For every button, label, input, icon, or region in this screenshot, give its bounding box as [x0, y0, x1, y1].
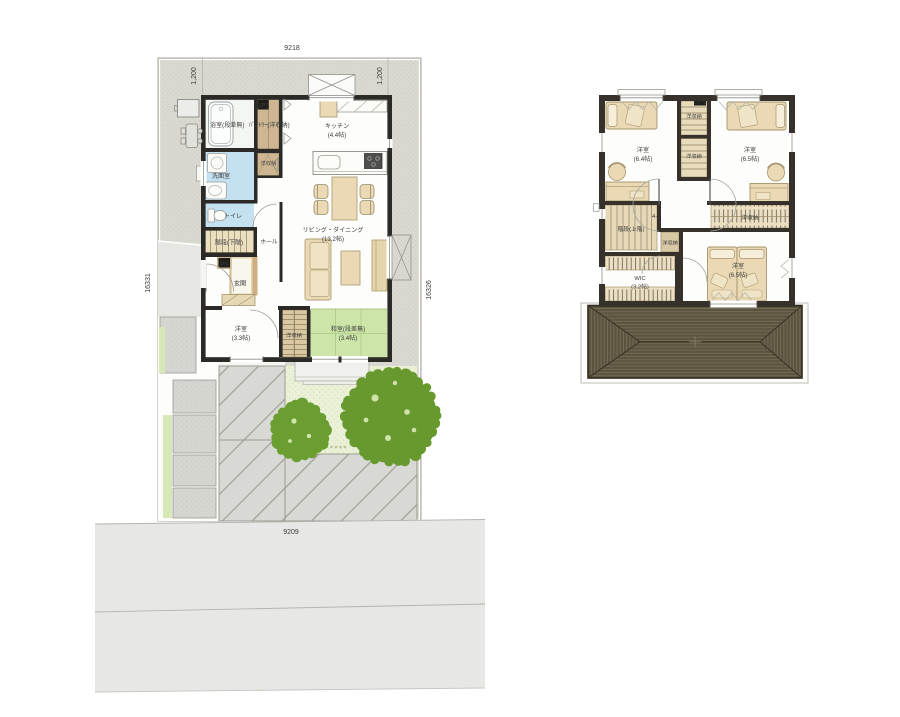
svg-text:1,200: 1,200	[377, 67, 384, 85]
svg-text:洋収納: 洋収納	[741, 214, 759, 222]
svg-text:洋室: 洋室	[744, 146, 756, 154]
svg-text:洋収納: 洋収納	[261, 159, 277, 167]
svg-text:DPS: DPS	[257, 104, 269, 110]
svg-text:WIC: WIC	[634, 276, 645, 282]
svg-text:9218: 9218	[284, 45, 300, 52]
svg-text:和室(段差無): 和室(段差無)	[331, 325, 366, 333]
svg-text:(6.5帖): (6.5帖)	[729, 271, 748, 279]
svg-text:1,200: 1,200	[191, 67, 198, 85]
svg-text:トイレ: トイレ	[224, 213, 242, 220]
svg-text:16331: 16331	[145, 273, 152, 293]
svg-text:洋収納: 洋収納	[662, 239, 678, 247]
svg-text:リビング・ダイニング: リビング・ダイニング	[303, 226, 364, 234]
svg-text:階段(下階): 階段(下階)	[215, 239, 243, 247]
svg-text:ﾊﾟﾝﾄﾘｰ(洋収納): ﾊﾟﾝﾄﾘｰ(洋収納)	[249, 121, 290, 129]
svg-text:16326: 16326	[426, 280, 433, 300]
svg-text:洋収納: 洋収納	[686, 112, 702, 120]
svg-text:(6.4帖): (6.4帖)	[634, 155, 653, 163]
svg-text:(4.4帖): (4.4帖)	[328, 131, 347, 139]
svg-text:階段(上階): 階段(上階)	[617, 225, 644, 233]
svg-text:洋室: 洋室	[637, 146, 649, 154]
svg-text:9209: 9209	[283, 529, 299, 536]
svg-text:(3.4帖): (3.4帖)	[339, 334, 358, 342]
svg-text:浴室(段差無): 浴室(段差無)	[210, 121, 245, 129]
svg-text:(3.2帖): (3.2帖)	[631, 283, 649, 291]
svg-text:洋収納: 洋収納	[686, 152, 702, 160]
svg-text:玄関: 玄関	[234, 280, 246, 288]
svg-text:洋室: 洋室	[235, 325, 247, 333]
svg-text:PS: PS	[220, 262, 228, 268]
svg-text:(3.3帖): (3.3帖)	[232, 334, 251, 342]
svg-text:洗面室: 洗面室	[212, 172, 230, 180]
svg-text:ホール: ホール	[260, 239, 278, 246]
svg-text:(6.5帖): (6.5帖)	[741, 155, 760, 163]
svg-text:キッチン: キッチン	[325, 123, 349, 130]
svg-text:(13.2帖): (13.2帖)	[322, 235, 344, 243]
svg-text:洋室: 洋室	[732, 262, 744, 270]
svg-text:洋収納: 洋収納	[286, 331, 302, 339]
